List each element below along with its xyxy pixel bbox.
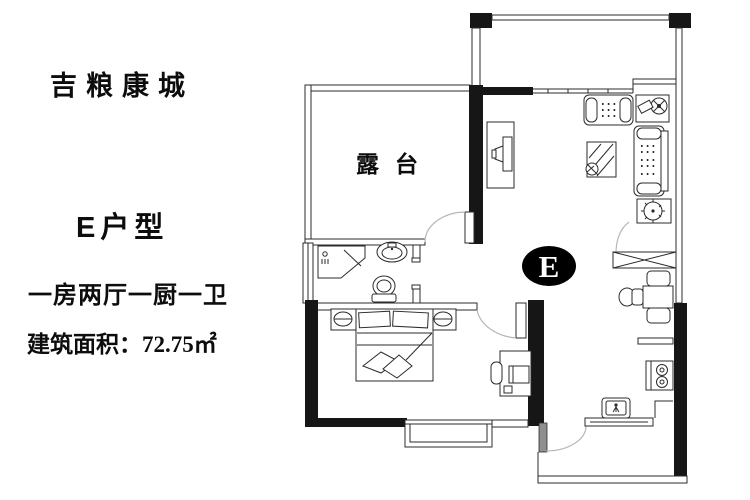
- terrace-door: [425, 212, 474, 243]
- kitchen-counter-icon: [585, 418, 653, 426]
- bed-icon: [356, 309, 433, 381]
- terrace-wall-bottom: [305, 239, 425, 245]
- bedroom-door: [477, 303, 526, 338]
- dining-door-arc: [616, 222, 629, 251]
- livingroom-furniture: [487, 95, 671, 223]
- shoe-cabinet-icon: [613, 252, 676, 268]
- kitchen-fixtures: [585, 361, 673, 426]
- tv-cabinet-icon: [487, 122, 514, 188]
- sofa-icon: [634, 126, 668, 196]
- bedroom-wall-bottom-thin: [490, 420, 528, 427]
- kitchen-sink-icon: [602, 398, 630, 418]
- computer-desk-icon: [491, 351, 531, 396]
- floorplan-page: 吉粮康城 E户型 一房两厅一厨一卫 建筑面积：72.75㎡: [0, 0, 750, 500]
- terrace-wall-left: [305, 85, 311, 243]
- shower-icon: [318, 246, 365, 278]
- bedroom-wall-left-black: [305, 300, 318, 427]
- wall-top: [492, 15, 669, 20]
- terrace-label: 露台: [356, 151, 434, 177]
- livingroom-window: [533, 79, 676, 93]
- fan-table-icon: [636, 95, 669, 122]
- bathroom-sink-icon: [377, 242, 407, 262]
- kitchen-wall-right-black: [674, 303, 687, 483]
- bathroom-fixtures: [318, 242, 407, 302]
- column-top-right: [669, 13, 691, 28]
- kitchen-counter-corner: [655, 401, 673, 418]
- floorplan-drawing: 露台: [0, 0, 750, 500]
- bathroom-door-jambs: [412, 258, 420, 289]
- entry-door: [539, 423, 586, 452]
- livingroom-wall-top-black: [483, 87, 533, 95]
- bedroom-wall-bottom-black: [310, 418, 407, 427]
- nightstand-right-icon: [431, 309, 456, 330]
- plant-icon: [637, 199, 671, 223]
- stove-icon: [646, 361, 673, 390]
- doors: [412, 212, 629, 452]
- unit-badge-letter: E: [539, 249, 560, 284]
- bay-window: [405, 420, 492, 447]
- bedroom-furniture: [331, 309, 531, 396]
- toilet-icon: [372, 276, 396, 302]
- wall-bottom: [538, 476, 687, 483]
- nightstand-left-icon: [331, 309, 356, 330]
- column-top-left: [470, 13, 492, 28]
- coffee-table-icon: [586, 142, 616, 177]
- wall-right-upper: [676, 28, 682, 303]
- dining-furniture: [613, 252, 676, 323]
- kitchen-shelf-wall: [638, 338, 673, 344]
- loveseat-icon: [584, 95, 633, 125]
- unit-badge: E: [522, 246, 576, 286]
- wall-column-stem: [472, 28, 480, 87]
- terrace-wall-top: [305, 85, 470, 91]
- dining-table-icon: [619, 271, 673, 323]
